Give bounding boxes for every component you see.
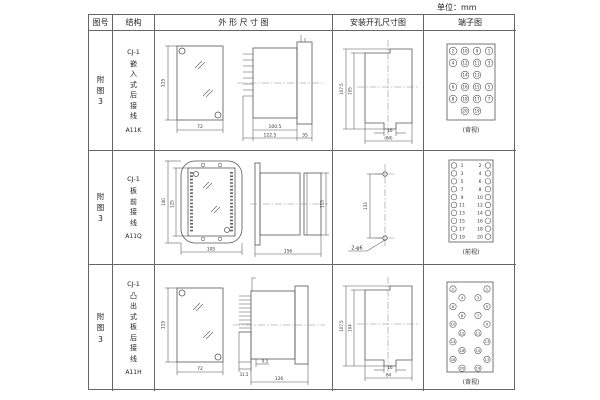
terminal-pin-number: 19 (474, 108, 480, 113)
terminal-pin-number: 7 (460, 186, 463, 192)
terminal-pin (485, 202, 491, 208)
view-label: (背视) (462, 378, 479, 386)
row1-mounting-drawing: 107.5 105 16 (64) (333, 32, 423, 150)
row3-terminal-cell: 2143658710912111413161518172019 (背视) (424, 265, 516, 391)
terminal-pin-number: 11 (474, 60, 480, 65)
terminal-pin (485, 186, 491, 192)
terminal-pin (485, 162, 491, 168)
svg-text:125: 125 (170, 199, 175, 207)
page: 单位：mm 图号 结构 外 形 尺 寸 图 安装开孔尺寸图 端子图 附图3 CJ… (0, 0, 600, 400)
terminal-pin-number: 6 (478, 179, 481, 185)
svg-text:140: 140 (161, 197, 166, 205)
dim-104 (351, 290, 365, 366)
terminal-pin-number: 6 (451, 84, 454, 89)
terminal-pin (451, 233, 457, 239)
dim-133 (367, 174, 383, 238)
svg-text:16: 16 (387, 128, 393, 133)
terminal-pin-number: 12 (462, 60, 468, 65)
terminal-pin-number: 17 (484, 357, 489, 362)
row3-outline-drawing: 115 72 (155, 266, 332, 390)
svg-text:100.5: 100.5 (269, 124, 282, 130)
terminal-pin-number: 18 (477, 226, 483, 232)
side-view: 156 115 (250, 163, 329, 257)
svg-text:122.5: 122.5 (264, 132, 277, 138)
terminal-pin-number: 14 (462, 72, 468, 77)
terminal-pin-number: 19 (459, 234, 465, 240)
svg-text:9.5: 9.5 (262, 359, 269, 364)
row3-outline-cell: 115 72 (155, 265, 333, 391)
svg-text:156: 156 (284, 248, 293, 254)
row3-mounting-drawing: 107.5 104 16 64 (333, 266, 423, 390)
row1-outline-cell: 115 72 100. (155, 31, 333, 151)
terminal-pin (485, 170, 491, 176)
row3-desc: 凸出式板后接线 (129, 291, 138, 365)
front-view: 115 72 (161, 46, 224, 133)
cutout-profile (365, 49, 412, 129)
row2-structure: CJ-1 板前接线 A11Q (113, 151, 155, 265)
row1-structure: CJ-1 嵌入式后接线 A11K (113, 31, 155, 151)
svg-text:107.5: 107.5 (339, 320, 344, 332)
dim-125 (173, 168, 188, 236)
terminal-pin-number: 10 (450, 322, 455, 327)
terminal-pin-number: 17 (474, 96, 480, 101)
row2-terminal-cell: 1234567891011121314151617181920 (前视) (424, 151, 516, 265)
terminal-pin-number: 19 (475, 366, 480, 371)
svg-text:115: 115 (161, 321, 167, 330)
dim-115 (165, 288, 177, 362)
row1-model: CJ-1 (127, 48, 140, 56)
terminal-pin-number: 8 (451, 96, 454, 101)
row1-terminal-cell: 2109141211314136161558181772019 (背视) (424, 31, 516, 151)
row2-outline-drawing: 140 125 105 (155, 152, 332, 264)
row2-mounting-cell: 133 2-φ6 (333, 151, 424, 265)
hook (301, 35, 305, 42)
terminal-pin (451, 178, 457, 184)
svg-text:16: 16 (387, 365, 393, 370)
row2-fig: 附图3 (89, 151, 113, 265)
terminal-pin-number: 11 (459, 202, 465, 208)
terminal-pin-number: 18 (462, 96, 468, 101)
svg-text:105: 105 (207, 246, 216, 252)
row3-model: CJ-1 (127, 280, 140, 288)
terminal-pin-number: 4 (478, 171, 481, 177)
dim-31-5 (239, 362, 251, 372)
svg-text:115: 115 (161, 78, 167, 87)
terminal-pin (451, 162, 457, 168)
terminal-pin-number: 5 (487, 84, 490, 89)
hatch-marks (203, 182, 220, 213)
terminal-pin (451, 202, 457, 208)
terminal-pin-number: 13 (459, 210, 465, 216)
row1-desc: 嵌入式后接线 (129, 59, 138, 122)
side-view: 100.5 122.5 35 (237, 35, 325, 141)
svg-text:35: 35 (302, 132, 308, 138)
hatch-marks (193, 303, 213, 339)
terminal-pin-number: 9 (460, 194, 463, 200)
terminal-pin-number: 16 (477, 218, 483, 224)
svg-text:133: 133 (363, 201, 368, 209)
terminal-pin (485, 194, 491, 200)
dim-64 (365, 360, 412, 381)
terminal-pin (451, 186, 457, 192)
row1-mounting-cell: 107.5 105 16 (64) (333, 31, 424, 151)
header-mounting: 安装开孔尺寸图 (333, 15, 424, 31)
terminal-pin (485, 218, 491, 224)
header-outline: 外 形 尺 寸 图 (155, 15, 333, 31)
terminal-pin-number: 12 (477, 202, 483, 208)
unit-label: 单位：mm (437, 2, 477, 13)
row1-code: A11K (126, 127, 142, 134)
terminal-pin-number: 16 (462, 84, 468, 89)
terminal-pin-number: 5 (460, 179, 463, 185)
terminal-pin-number: 15 (474, 84, 480, 89)
terminal-pin (485, 233, 491, 239)
svg-text:115: 115 (320, 199, 325, 207)
svg-text:104: 104 (348, 324, 353, 332)
terminal-pin-number: 16 (459, 348, 464, 353)
row1-fig: 附图3 (89, 31, 113, 151)
row2-model: CJ-1 (127, 175, 140, 183)
terminal-pin (451, 194, 457, 200)
svg-text:107.5: 107.5 (339, 82, 344, 94)
terminal-pin-number: 15 (459, 218, 465, 224)
terminal-pin-number: 20 (477, 234, 483, 240)
header-terminal: 端子图 (424, 15, 516, 31)
svg-text:64: 64 (386, 373, 392, 378)
terminal-comb (239, 296, 251, 332)
row1-outline-drawing: 115 72 100. (155, 32, 332, 150)
row1-terminal-diagram: 2109141211314136161558181772019 (背视) (425, 32, 516, 150)
terminal-pin-number: 20 (462, 108, 468, 113)
spec-table: 图号 结构 外 形 尺 寸 图 安装开孔尺寸图 端子图 附图3 CJ-1 嵌入式… (88, 14, 515, 390)
front-view: 140 125 105 (161, 161, 242, 255)
svg-text:72: 72 (197, 124, 203, 130)
svg-text:(64): (64) (384, 135, 393, 140)
cutout-profile (365, 286, 412, 366)
dim-64 (365, 123, 412, 144)
terminal-pin-number: 7 (487, 96, 490, 101)
terminal-pin-number: 4 (451, 60, 454, 65)
svg-text:2-φ6: 2-φ6 (351, 245, 362, 251)
svg-text:105: 105 (348, 86, 353, 94)
terminal-pin-number: 8 (478, 186, 481, 192)
terminal-pins: 2109141211314136161558181772019 (449, 47, 493, 115)
terminal-pin-number: 9 (475, 48, 478, 53)
terminal-pin-number: 2 (478, 163, 481, 169)
terminal-pin-number: 10 (477, 194, 483, 200)
header-structure: 结构 (113, 15, 155, 31)
svg-text:31.5: 31.5 (240, 372, 249, 377)
terminal-pin-number: 14 (477, 210, 483, 216)
view-label: (背视) (462, 126, 479, 134)
front-view: 115 72 (161, 288, 224, 375)
header-fig: 图号 (89, 15, 113, 31)
terminal-pin (485, 210, 491, 216)
terminal-pins: 2143658710912111413161518172019 (449, 286, 489, 372)
terminal-pin-number: 13 (484, 339, 489, 344)
dim-105 (351, 53, 365, 129)
terminal-pin-number: 1 (460, 163, 463, 169)
row3-code: A11H (125, 369, 141, 376)
terminal-pin (451, 170, 457, 176)
terminal-pin-number: 20 (459, 366, 464, 371)
row3-fig: 附图3 (89, 265, 113, 391)
terminal-pin-number: 15 (475, 348, 480, 353)
terminal-pin-number: 2 (451, 48, 454, 53)
row2-terminal-diagram: 1234567891011121314151617181920 (前视) (425, 152, 516, 264)
terminal-pin-number: 12 (459, 330, 464, 335)
row2-outline-cell: 140 125 105 (155, 151, 333, 265)
row2-mounting-drawing: 133 2-φ6 (333, 152, 423, 264)
terminal-pin-number: 3 (460, 171, 463, 177)
terminal-pin (451, 210, 457, 216)
terminal-pins: 1234567891011121314151617181920 (451, 162, 491, 240)
terminal-pin (451, 218, 457, 224)
hook (252, 278, 256, 291)
terminal-pin-number: 1 (487, 48, 490, 53)
row3-structure: CJ-1 凸出式板后接线 A11H (113, 265, 155, 391)
terminal-pin-number: 17 (459, 226, 465, 232)
svg-text:126: 126 (275, 376, 284, 382)
terminal-comb (243, 54, 253, 96)
view-label: (前视) (462, 248, 479, 256)
terminal-pin-number: 13 (474, 72, 480, 77)
hatch-marks (195, 61, 213, 97)
row3-mounting-cell: 107.5 104 16 64 (333, 265, 424, 391)
svg-text:72: 72 (197, 366, 203, 372)
row2-code: A11Q (125, 233, 141, 240)
row3-terminal-diagram: 2143658710912111413161518172019 (背视) (425, 266, 516, 390)
terminal-pin-number: 10 (462, 48, 468, 53)
terminal-pin-number: 18 (450, 357, 455, 362)
row2-desc: 板前接线 (129, 186, 138, 228)
terminal-pin (451, 225, 457, 231)
dim-115 (165, 46, 177, 120)
terminal-pin (485, 178, 491, 184)
terminal-pin (485, 225, 491, 231)
terminal-pin-number: 11 (475, 330, 480, 335)
terminal-pin-number: 3 (487, 60, 490, 65)
side-view: 31.5 9.5 126 (233, 278, 325, 385)
terminal-pin-number: 14 (450, 339, 455, 344)
